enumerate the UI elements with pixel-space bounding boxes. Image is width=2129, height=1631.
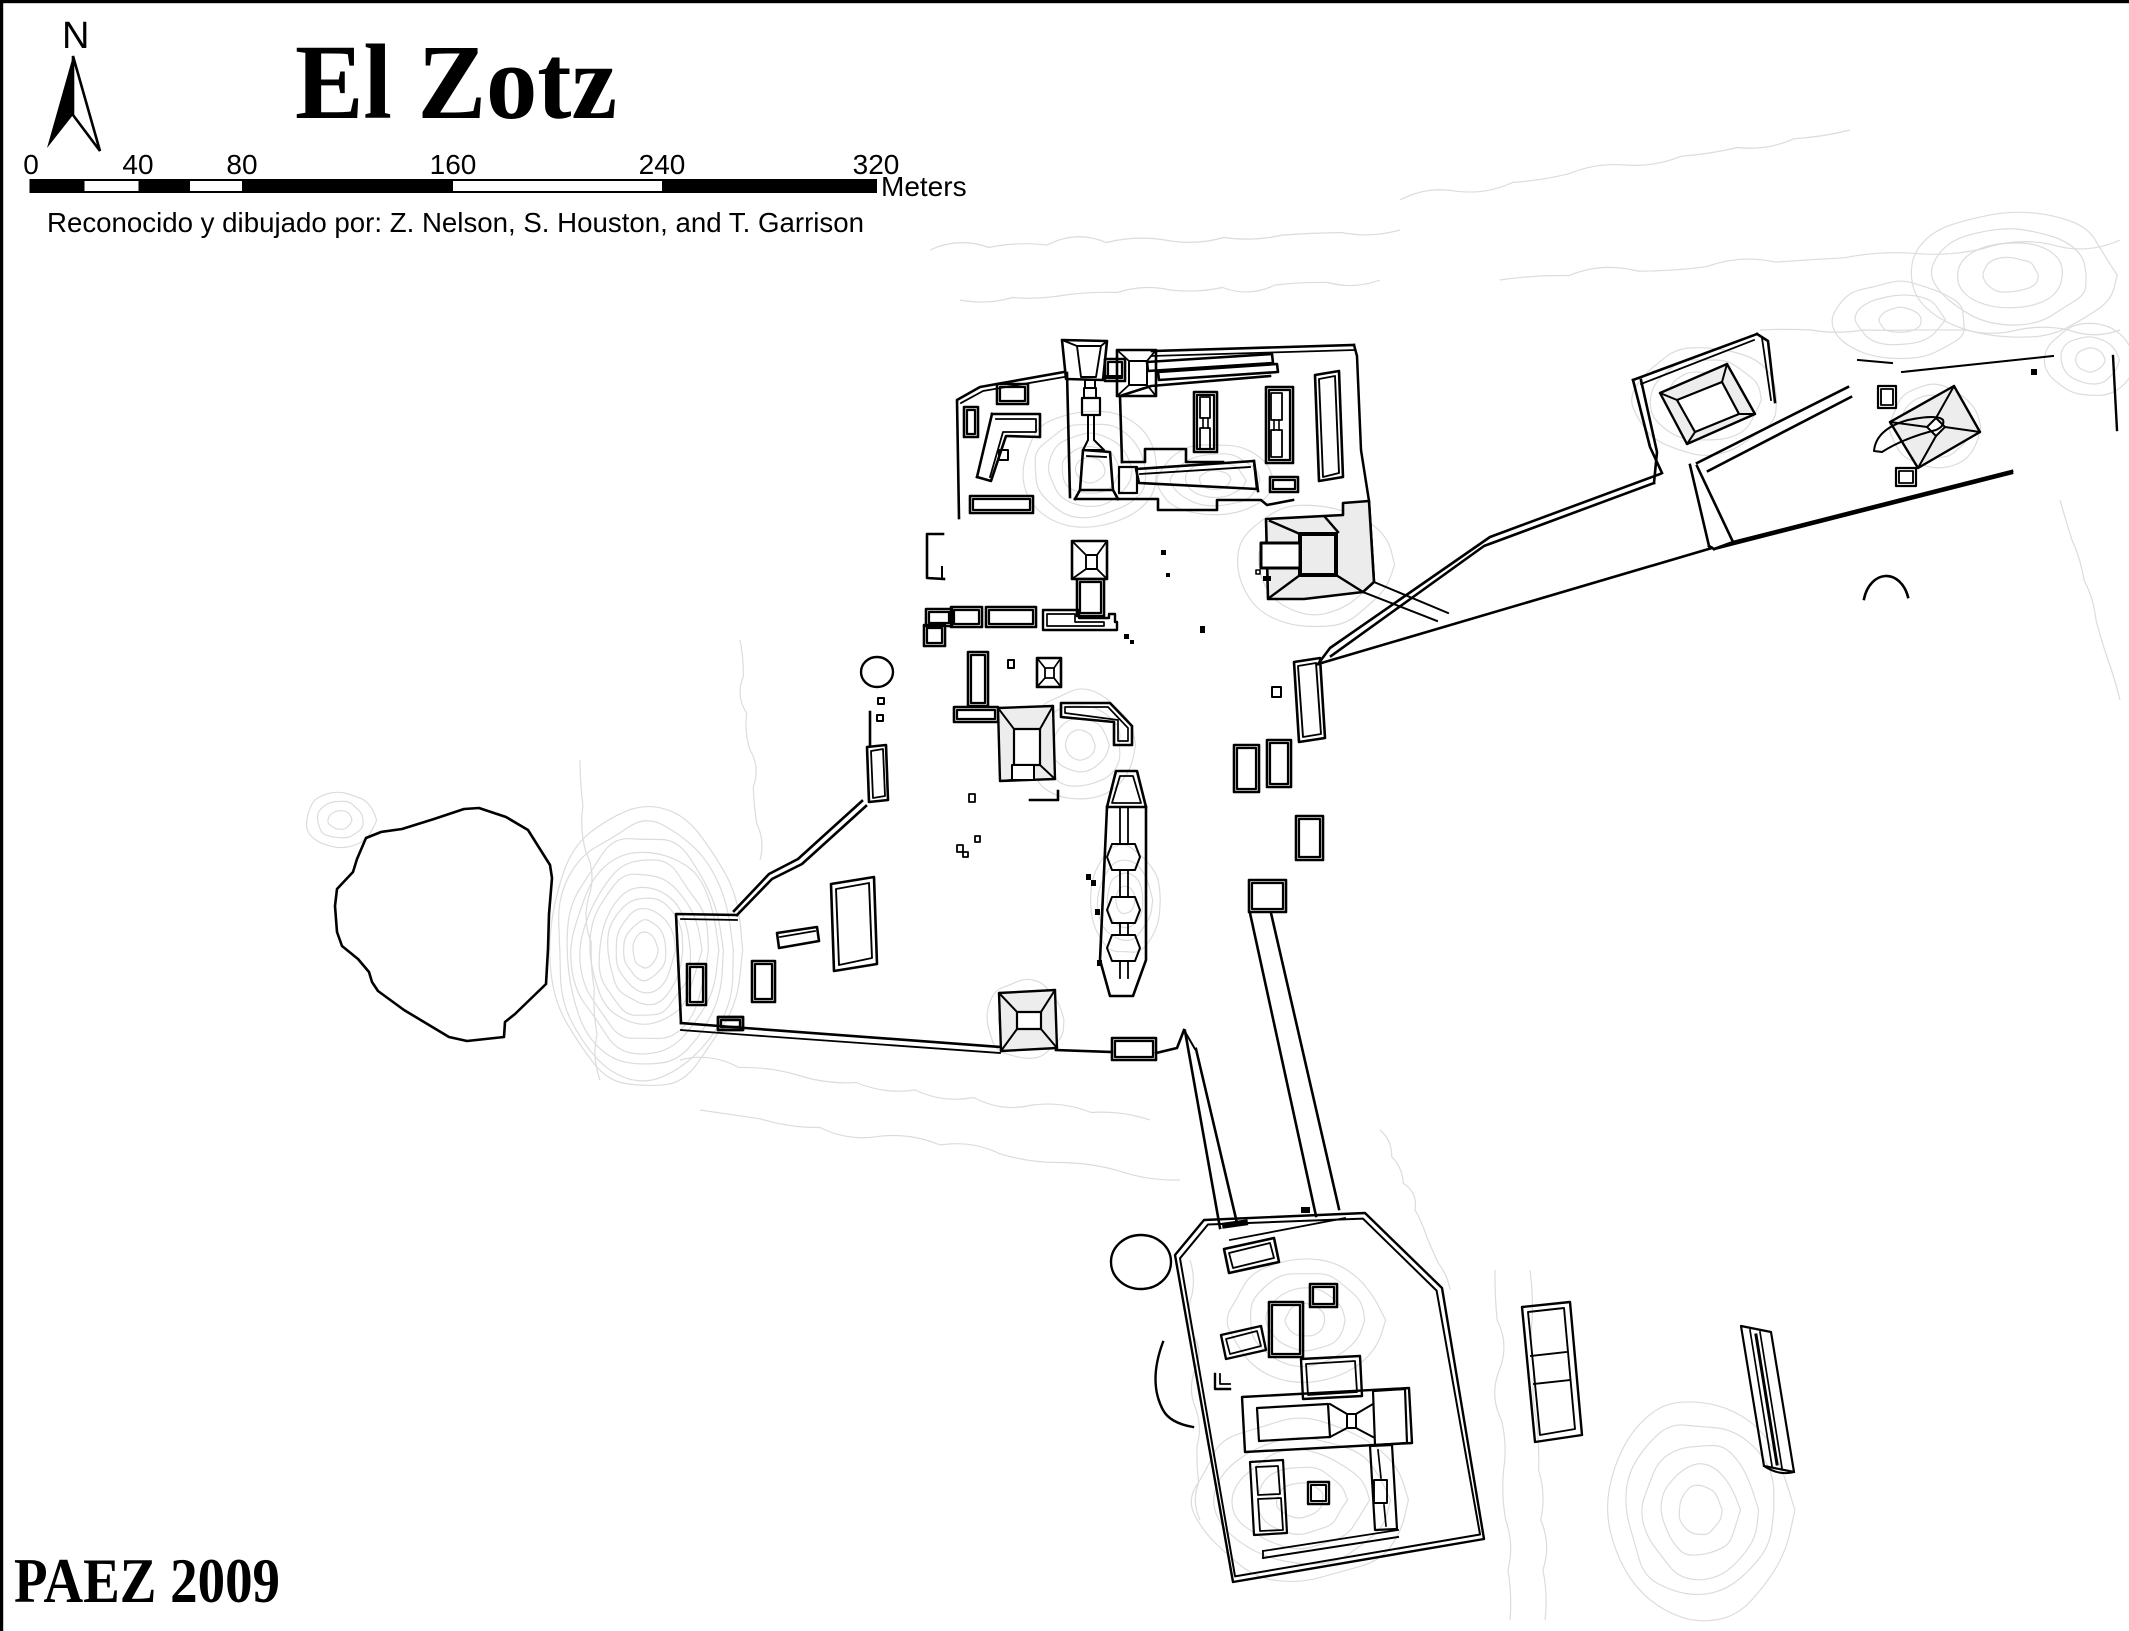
svg-text:PAEZ 2009: PAEZ 2009 [14, 1545, 280, 1616]
svg-text:240: 240 [639, 149, 686, 180]
svg-text:N: N [62, 15, 89, 57]
svg-text:40: 40 [122, 149, 153, 180]
svg-text:Meters: Meters [881, 171, 967, 202]
svg-text:El Zotz: El Zotz [295, 24, 617, 142]
svg-text:80: 80 [226, 149, 257, 180]
svg-text:0: 0 [23, 149, 39, 180]
svg-text:160: 160 [430, 149, 477, 180]
svg-text:Reconocido y dibujado por: Z.: Reconocido y dibujado por: Z. Nelson, S.… [47, 207, 864, 238]
